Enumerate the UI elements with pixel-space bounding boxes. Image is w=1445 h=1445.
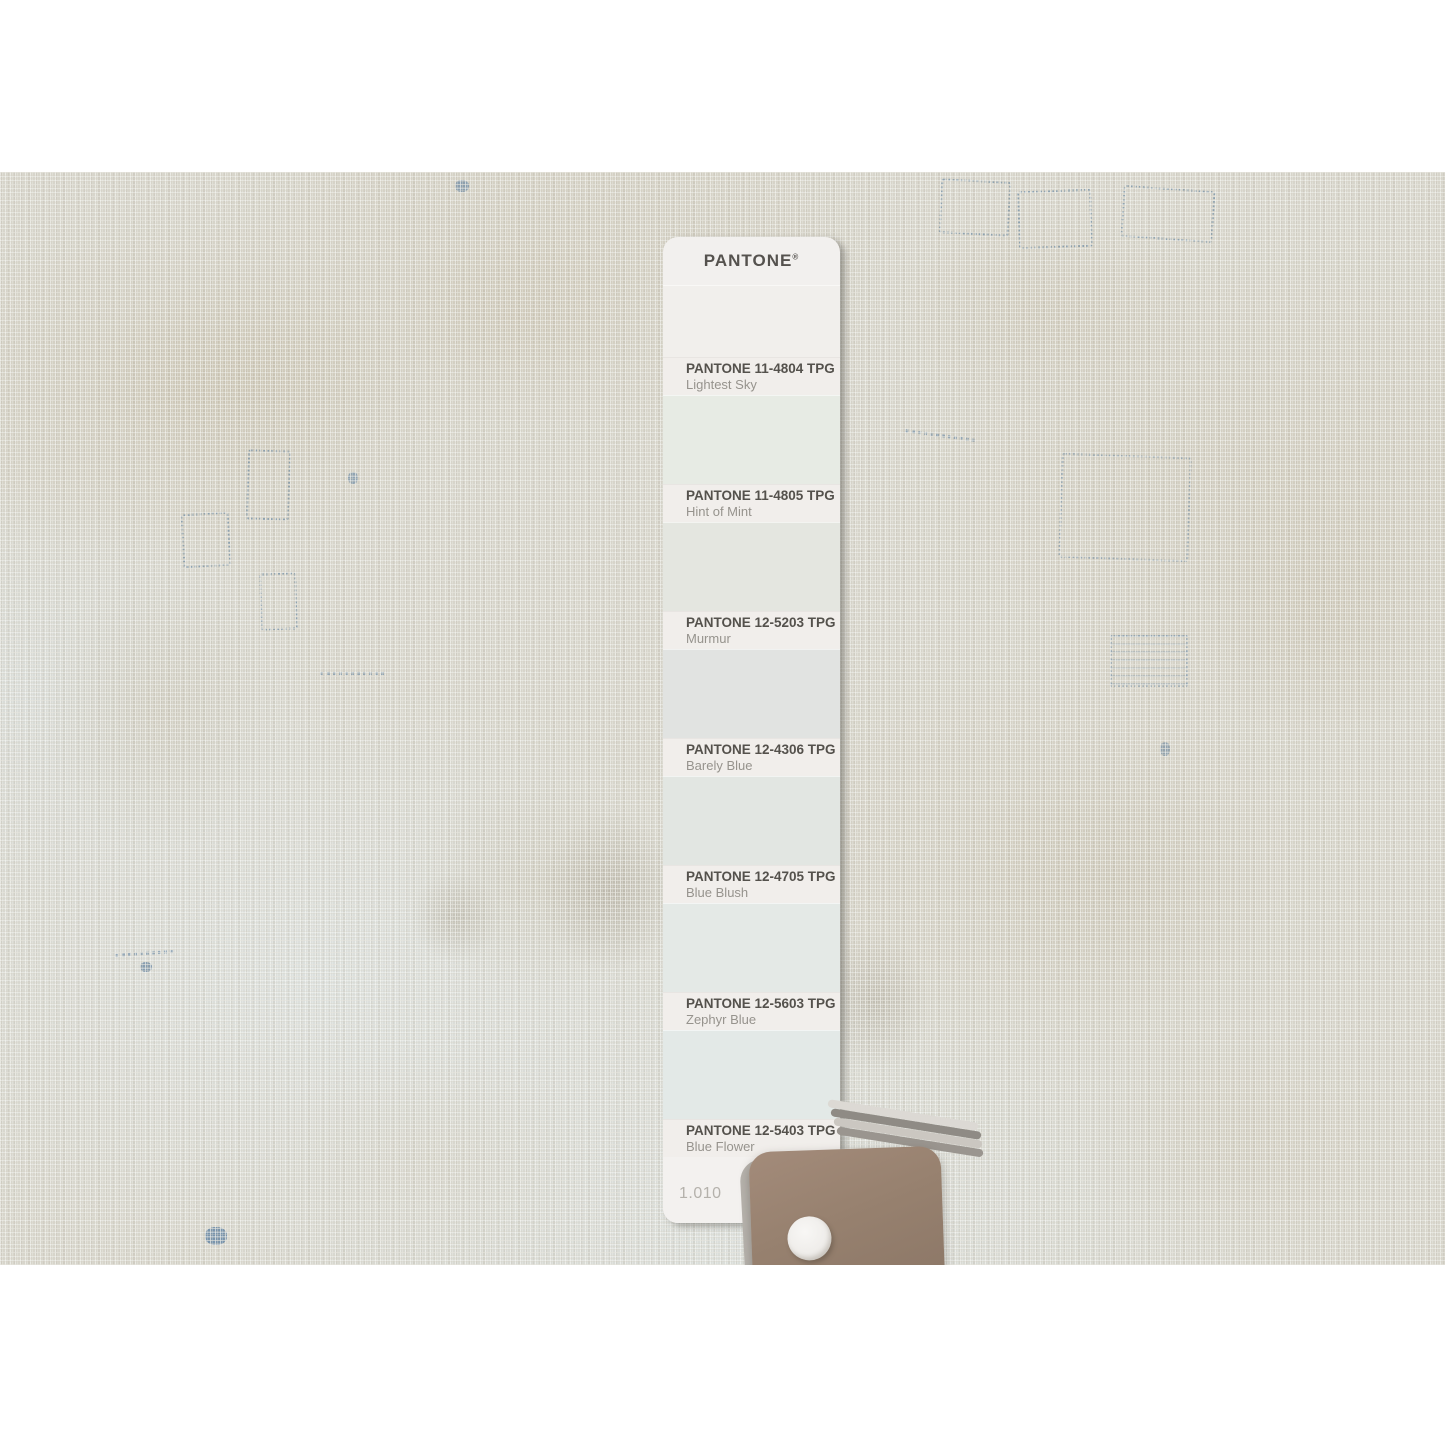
fabric-stitch-mark bbox=[115, 950, 173, 957]
fan-deck bbox=[735, 1107, 985, 1265]
fabric-stitch-dot bbox=[348, 472, 358, 484]
pantone-logo: PANTONE® bbox=[704, 251, 799, 270]
pantone-swatch: PANTONE 12-4705 TPG Blue Blush bbox=[663, 776, 840, 903]
swatch-label: PANTONE 11-4805 TPG Hint of Mint bbox=[663, 484, 840, 522]
fabric-stitch-dot bbox=[455, 180, 469, 192]
letterbox-top bbox=[0, 0, 1445, 172]
strip-page-number: 1.010 bbox=[679, 1185, 722, 1203]
pantone-swatch: PANTONE 12-4306 TPG Barely Blue bbox=[663, 649, 840, 776]
fabric-stitch-mark bbox=[320, 672, 384, 675]
fan-deck-top-card bbox=[748, 1146, 945, 1265]
swatch-code: PANTONE 11-4804 TPG bbox=[686, 361, 834, 377]
fabric-stitch-mark bbox=[1058, 453, 1192, 562]
swatch-label: PANTONE 12-5203 TPG Murmur bbox=[663, 611, 840, 649]
fabric-patch bbox=[40, 572, 280, 852]
swatch-name: Hint of Mint bbox=[686, 504, 834, 519]
swatch-name: Zephyr Blue bbox=[686, 1012, 834, 1027]
fabric-stitch-dot bbox=[140, 962, 152, 972]
color-chip bbox=[663, 776, 840, 865]
fabric-stitch-mark bbox=[1120, 185, 1215, 243]
photo-stage: PANTONE® PANTONE 11-4804 TPG Lightest Sk… bbox=[0, 0, 1445, 1445]
swatch-name: Barely Blue bbox=[686, 758, 834, 773]
swatch-code: PANTONE 12-5203 TPG bbox=[686, 615, 834, 631]
fabric-patch bbox=[1200, 472, 1440, 752]
swatch-label: PANTONE 12-4306 TPG Barely Blue bbox=[663, 738, 840, 776]
fabric-patch bbox=[380, 232, 650, 402]
swatch-code: PANTONE 12-4705 TPG bbox=[686, 869, 834, 885]
swatch-label: PANTONE 11-4804 TPG Lightest Sky bbox=[663, 357, 840, 395]
rivet bbox=[787, 1216, 833, 1262]
pantone-strip: PANTONE® PANTONE 11-4804 TPG Lightest Sk… bbox=[663, 237, 840, 1223]
letterbox-bottom bbox=[0, 1265, 1445, 1445]
fabric-stitch-mark bbox=[1110, 635, 1188, 687]
fabric-stitch-mark bbox=[939, 178, 1012, 237]
swatch-code: PANTONE 11-4805 TPG bbox=[686, 488, 834, 504]
fabric-patch bbox=[1080, 1032, 1400, 1262]
color-chip bbox=[663, 285, 840, 357]
fabric-stitch-mark bbox=[259, 572, 298, 630]
swatch-label: PANTONE 12-4705 TPG Blue Blush bbox=[663, 865, 840, 903]
swatch-code: PANTONE 12-4306 TPG bbox=[686, 742, 834, 758]
fabric-stitch-mark bbox=[905, 429, 975, 442]
fabric-stitch-dot bbox=[1160, 742, 1170, 756]
fabric-smudge bbox=[540, 812, 680, 972]
swatch-name: Blue Blush bbox=[686, 885, 834, 900]
registered-mark: ® bbox=[792, 252, 799, 261]
color-chip bbox=[663, 395, 840, 484]
fabric-stitch-mark bbox=[181, 512, 232, 568]
swatch-name: Lightest Sky bbox=[686, 377, 834, 392]
fabric-stitch-mark bbox=[1017, 189, 1093, 250]
color-chip bbox=[663, 1030, 840, 1119]
color-chip bbox=[663, 522, 840, 611]
swatch-code: PANTONE 12-5603 TPG bbox=[686, 996, 834, 1012]
pantone-swatch: PANTONE 11-4804 TPG Lightest Sky bbox=[663, 285, 840, 395]
pantone-swatch: PANTONE 12-5203 TPG Murmur bbox=[663, 522, 840, 649]
fabric-photo: PANTONE® PANTONE 11-4804 TPG Lightest Sk… bbox=[0, 172, 1445, 1265]
color-chip bbox=[663, 649, 840, 738]
pantone-swatch: PANTONE 12-5603 TPG Zephyr Blue bbox=[663, 903, 840, 1030]
fabric-smudge bbox=[410, 872, 500, 962]
fabric-patch bbox=[260, 1052, 600, 1262]
fabric-stitch-mark bbox=[246, 449, 291, 520]
fabric-patch bbox=[950, 752, 1270, 1012]
color-chip bbox=[663, 903, 840, 992]
swatch-name: Murmur bbox=[686, 631, 834, 646]
fabric-stitch-dot bbox=[205, 1227, 227, 1245]
pantone-strip-header: PANTONE® bbox=[663, 237, 840, 285]
pantone-swatch: PANTONE 11-4805 TPG Hint of Mint bbox=[663, 395, 840, 522]
swatch-label: PANTONE 12-5603 TPG Zephyr Blue bbox=[663, 992, 840, 1030]
